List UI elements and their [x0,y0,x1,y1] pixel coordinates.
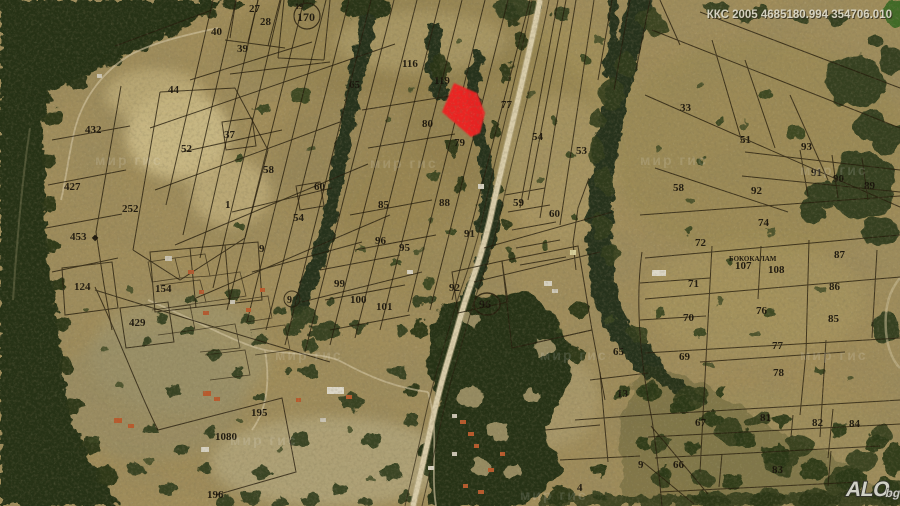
svg-text:мир гис: мир гис [640,152,708,168]
svg-text:мир гис: мир гис [370,155,438,171]
svg-text:мир гис: мир гис [800,347,868,363]
svg-text:мир гис: мир гис [230,432,298,448]
svg-text:мир гис: мир гис [540,347,608,363]
svg-text:мир гис: мир гис [520,487,588,503]
svg-text:ККС 2005 4685180.994 354706.0: ККС 2005 4685180.994 354706.010 [707,9,892,21]
svg-text:bg: bg [884,486,900,500]
svg-text:мир гис: мир гис [95,152,163,168]
svg-text:мир гис: мир гис [800,162,868,178]
svg-text:мир гис: мир гис [275,347,343,363]
